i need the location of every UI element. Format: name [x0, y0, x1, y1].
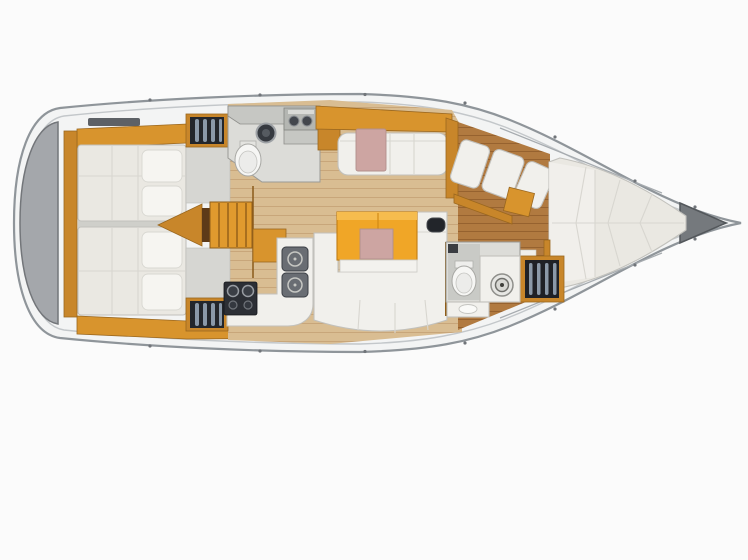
galley-stove	[224, 282, 257, 315]
aft-headboard-wall	[64, 131, 77, 317]
galley-sink-2	[282, 273, 308, 297]
table-inlay	[360, 229, 393, 259]
floor-plan-image	[0, 0, 748, 560]
forward-wardrobe	[520, 250, 564, 302]
upper-cabin-entry-floor	[186, 147, 230, 203]
pillow	[142, 150, 182, 182]
step-shadow	[202, 208, 210, 242]
head-corner-unit	[448, 244, 458, 253]
aft-head-counter-unit	[284, 108, 318, 130]
saloon-table	[337, 212, 417, 272]
aft-cabin-upper-berth	[78, 145, 186, 221]
aft-cabin-upper-wardrobe	[186, 114, 228, 147]
nav-panel	[356, 129, 386, 171]
galley-sink-1	[282, 247, 308, 271]
lower-cabin-entry-floor	[186, 248, 230, 298]
pillow	[142, 232, 182, 268]
aft-cabin-lower-wardrobe	[186, 298, 228, 331]
pillow	[142, 274, 182, 310]
pillow	[142, 186, 182, 216]
forward-head-sink	[491, 274, 513, 296]
aft-cabin-lower-berth	[78, 227, 186, 315]
forward-head-toilet	[452, 261, 476, 296]
deck-hatch	[88, 118, 140, 126]
aft-head-basin	[257, 124, 276, 143]
saloon-tv-unit	[427, 218, 445, 232]
head-drawer	[447, 302, 489, 317]
floor-plan-page	[0, 0, 748, 560]
